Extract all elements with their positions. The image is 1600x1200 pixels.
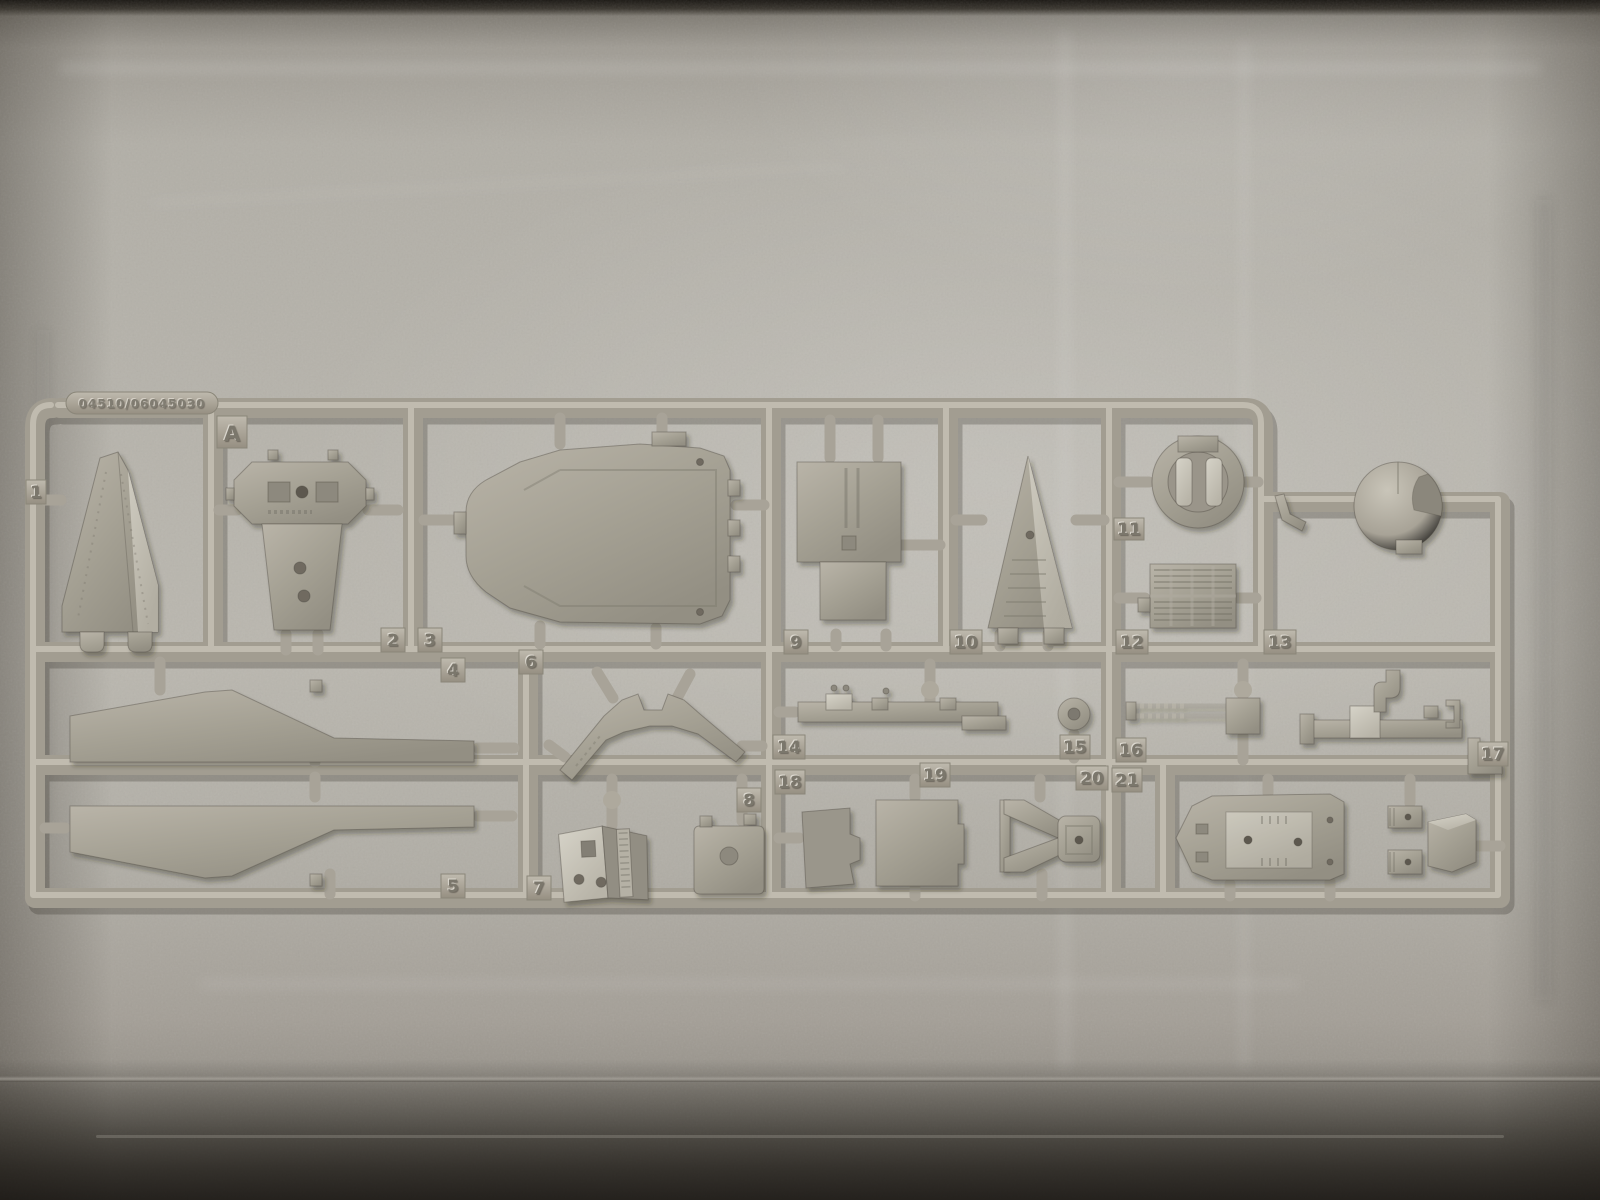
part-number-7: 7	[527, 876, 551, 900]
svg-text:12: 12	[1120, 633, 1144, 653]
part-19-square-plate	[876, 800, 964, 886]
backdrop-bottom-fold	[96, 1135, 1504, 1138]
part-11-hatch-ring	[1152, 436, 1244, 528]
part-number-19: 19	[920, 763, 950, 787]
svg-text:2: 2	[387, 631, 399, 651]
svg-text:16: 16	[1119, 741, 1143, 761]
part-number-12: 12	[1116, 630, 1148, 654]
svg-text:3: 3	[424, 631, 436, 651]
svg-text:17: 17	[1481, 745, 1505, 765]
part-4-nub	[310, 680, 322, 692]
sprue-photo-rendering: 04510/06045030 A 1 2 3 4 6 9 10 11 12 13…	[0, 0, 1600, 1200]
foam-texture	[0, 0, 1600, 1200]
svg-text:4: 4	[447, 661, 459, 681]
part-7-stowage-box	[558, 824, 650, 905]
part-number-1: 1	[26, 480, 46, 504]
backdrop-bottom-shadow	[0, 1060, 1600, 1200]
part-8-access-plate	[694, 814, 764, 894]
svg-text:5: 5	[447, 877, 459, 897]
svg-text:11: 11	[1117, 520, 1141, 540]
part-number-8: 8	[737, 788, 761, 812]
mold-code-text: 04510/06045030	[79, 397, 206, 411]
svg-text:15: 15	[1063, 738, 1087, 758]
part-number-18: 18	[775, 770, 805, 794]
svg-text:21: 21	[1115, 771, 1139, 791]
svg-text:10: 10	[954, 633, 978, 653]
svg-text:6: 6	[525, 653, 537, 673]
part-number-3: 3	[418, 628, 442, 652]
part-number-9: 9	[784, 630, 808, 654]
part-number-17: 17	[1478, 742, 1508, 766]
svg-text:8: 8	[743, 791, 755, 811]
svg-text:19: 19	[923, 766, 947, 786]
part-number-20: 20	[1076, 766, 1108, 790]
part-number-13: 13	[1264, 630, 1296, 654]
part-number-2: 2	[381, 628, 405, 652]
part-number-21: 21	[1112, 768, 1142, 792]
svg-text:13: 13	[1268, 633, 1292, 653]
photo-model-kit-sprue-on-foam: 04510/06045030 A 1 2 3 4 6 9 10 11 12 13…	[0, 0, 1600, 1200]
svg-text:9: 9	[790, 633, 802, 653]
mold-code-pill: 04510/06045030	[66, 392, 218, 414]
part-number-16: 16	[1116, 738, 1146, 762]
part-12-engine-grille	[1138, 564, 1236, 628]
part-number-14: 14	[773, 735, 805, 759]
svg-text:18: 18	[778, 773, 802, 793]
part-number-10: 10	[950, 630, 982, 654]
svg-text:20: 20	[1080, 769, 1104, 789]
part-number-4: 4	[441, 658, 465, 682]
part-number-5: 5	[441, 874, 465, 898]
gate-letter-tab: A	[217, 416, 247, 448]
svg-text:7: 7	[533, 879, 545, 899]
svg-text:14: 14	[777, 738, 801, 758]
part-number-15: 15	[1060, 735, 1090, 759]
part-number-11: 11	[1114, 518, 1144, 540]
part-15-wheel-ring	[1058, 698, 1090, 730]
svg-text:1: 1	[30, 483, 42, 503]
gate-letter-text: A	[224, 422, 241, 446]
part-number-6: 6	[519, 650, 543, 674]
part-5-nub	[310, 874, 322, 886]
